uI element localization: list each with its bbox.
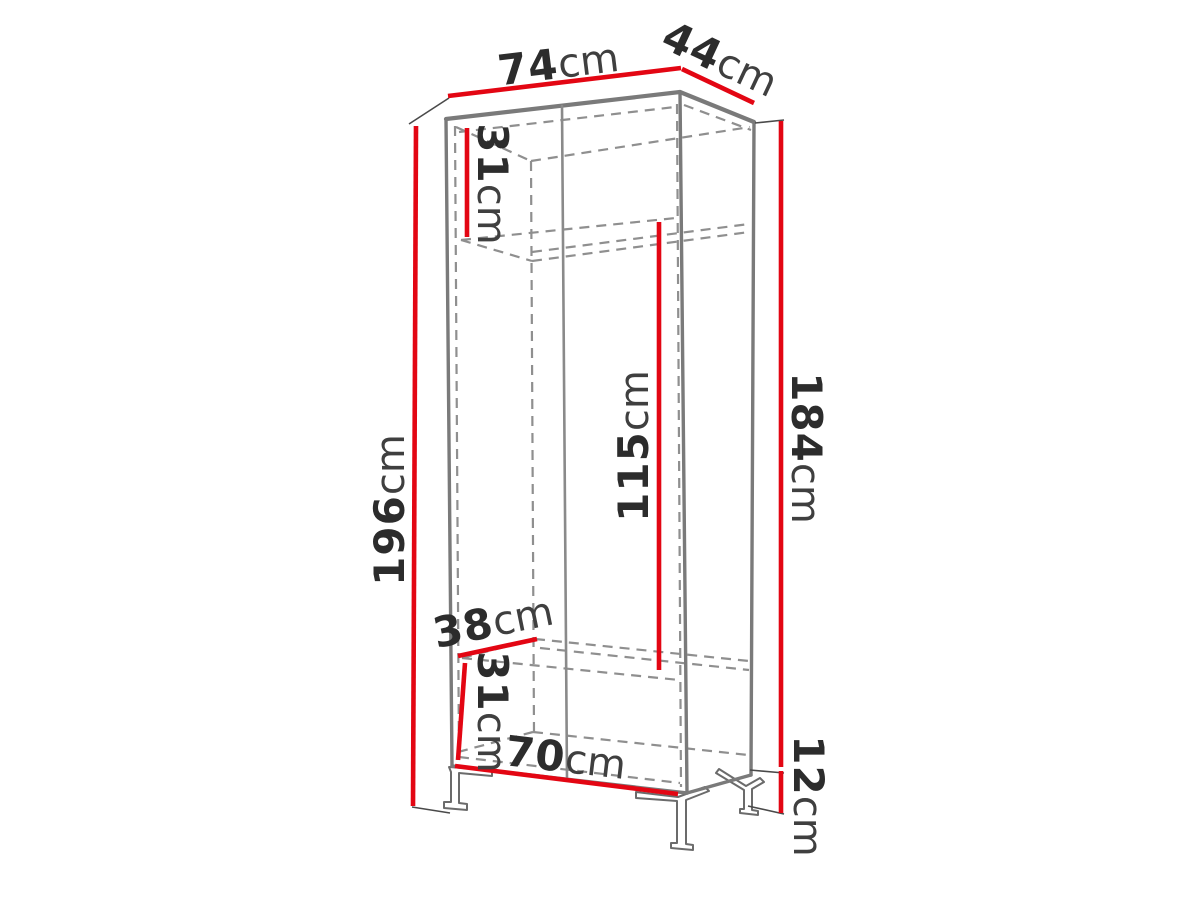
inner-left-edge [455, 126, 459, 760]
front-left-leg [444, 767, 492, 810]
label-width-74: 74cm [495, 32, 621, 95]
label-hanging-115: 115cm [609, 370, 658, 522]
label-width-70: 70cm [503, 726, 629, 789]
witness-top-left [409, 98, 449, 124]
back-left-edge [531, 161, 534, 733]
upper-shelf-back-2 [532, 224, 749, 252]
back-right-edge [751, 122, 754, 775]
front-right-leg [636, 787, 709, 850]
dimension-labels: 74cm 44cm 196cm 31cm 115cm 184cm 38cm 31… [365, 11, 833, 857]
front-left-edge [446, 119, 452, 766]
label-carcass-184: 184cm [782, 372, 831, 524]
label-height-196: 196cm [365, 434, 414, 586]
label-top-compartment-31: 31cm [468, 123, 517, 244]
wardrobe-dimension-diagram: 74cm 44cm 196cm 31cm 115cm 184cm 38cm 31… [0, 0, 1200, 900]
diagram-svg: 74cm 44cm 196cm 31cm 115cm 184cm 38cm 31… [0, 0, 1200, 900]
top-back-edge [531, 127, 750, 161]
label-legs-12: 12cm [784, 735, 833, 856]
door-seam [562, 106, 567, 779]
upper-shelf-back [532, 232, 749, 261]
